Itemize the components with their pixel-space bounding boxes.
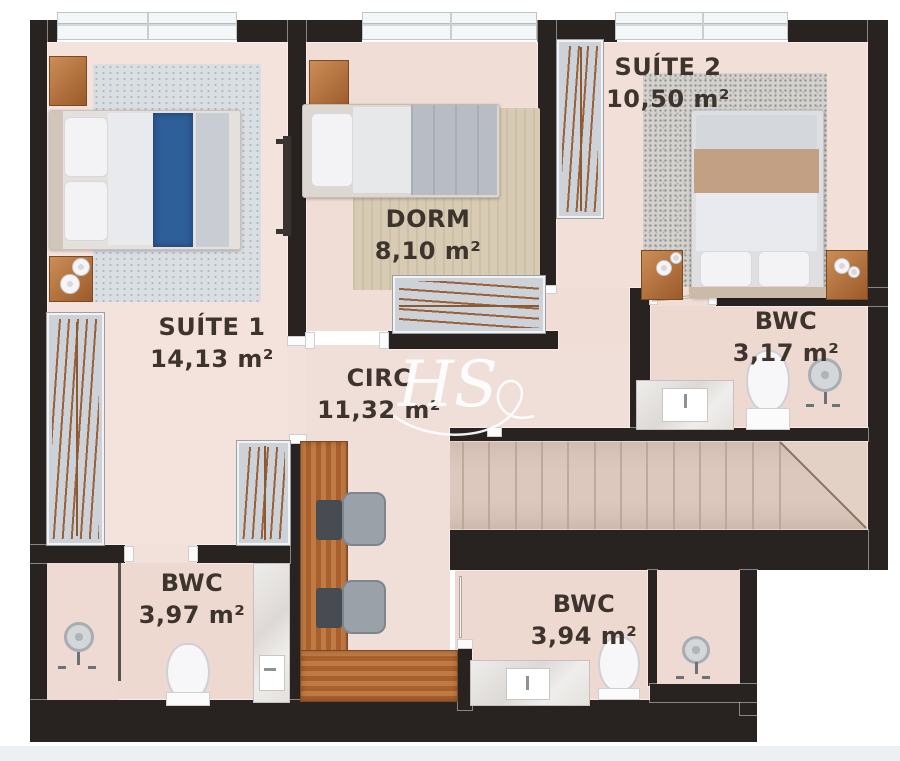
room-label-bwc-suite2: BWC 3,17 m² [733, 306, 840, 369]
window-divider [702, 13, 704, 39]
shower-drain-mark [806, 404, 814, 407]
bed-headboard [689, 287, 826, 298]
suite1-wall-tv [283, 136, 291, 236]
wall-stair-bottom [450, 530, 868, 570]
suite1-wall-tv-arm [276, 139, 285, 144]
window-divider [450, 13, 452, 39]
suite2-nightstand-right [826, 250, 868, 300]
door-jamb [380, 333, 388, 348]
room-name: DORM [375, 204, 482, 236]
suite2-lamp-small [848, 266, 860, 278]
bed-fold-top [696, 115, 817, 149]
bwc394-shower-head [682, 636, 710, 664]
bwc397-shower-glass [118, 563, 121, 681]
room-label-suite1: SUÍTE 1 14,13 m² [150, 312, 274, 375]
dorm-wardrobe-side [557, 40, 603, 218]
bed-pillow [758, 251, 810, 287]
room-area: 3,17 m² [733, 338, 840, 370]
shower-drain-mark [832, 404, 840, 407]
bwc317-toilet-tank [746, 408, 790, 430]
dorm-dresser [309, 60, 349, 110]
room-name: SUÍTE 1 [150, 312, 274, 344]
window-divider [147, 13, 149, 39]
bed-folded-throw [196, 113, 229, 247]
wall-bwc397-top-a [30, 545, 125, 563]
bwc394-shower-floor [657, 570, 740, 684]
window-suite2 [615, 12, 788, 40]
room-area: 3,97 m² [139, 600, 246, 632]
circ-desk-horizontal [300, 650, 458, 702]
bwc394-faucet [526, 676, 529, 690]
door-leaf-bwc394 [459, 576, 462, 638]
room-area: 3,94 m² [531, 621, 638, 653]
bwc397-sink [259, 655, 285, 691]
bed-pillow [311, 113, 353, 187]
room-area: 10,50 m² [606, 84, 730, 116]
suite2-lamp [656, 260, 672, 276]
room-name: BWC [139, 568, 246, 600]
room-name: BWC [531, 589, 638, 621]
bwc397-toilet-tank [166, 692, 210, 706]
suite1-wall-tv-arm [276, 229, 285, 234]
bed-sheet [353, 107, 413, 193]
bed-duvet [108, 113, 154, 245]
shower-drain-mark [676, 676, 684, 679]
suite1-lamp [72, 258, 90, 276]
bed-pillow [64, 117, 108, 177]
bwc397-shower-head [64, 622, 94, 652]
suite2-double-bed [691, 110, 824, 298]
room-label-bwc-social: BWC 3,94 m² [531, 589, 638, 652]
wall-bwc397-top-b [197, 545, 290, 563]
floor-bwc397-door [125, 545, 197, 563]
bwc317-faucet [684, 394, 687, 408]
wall-bottom [30, 700, 757, 742]
desk-chair-seat [342, 580, 386, 634]
suite2-lamp-small [670, 252, 682, 264]
shower-drain-mark [58, 666, 66, 669]
staircase [450, 441, 868, 530]
shower-drain-mark [88, 666, 96, 669]
wall-shower-base [650, 684, 757, 702]
bwc394-toilet-tank [598, 688, 640, 700]
shower-drain-mark [695, 662, 698, 674]
window-suite1 [57, 12, 237, 40]
room-name: SUÍTE 2 [606, 52, 730, 84]
bed-body [696, 193, 817, 251]
bed-runner-blue [153, 113, 193, 247]
shower-drain-mark [77, 652, 80, 665]
wardrobe-rod [580, 47, 582, 211]
window-dorm [362, 12, 537, 40]
suite1-wardrobe-right [237, 441, 290, 545]
bed-pillow [700, 251, 752, 287]
bed-blanket [411, 105, 497, 195]
suite1-wardrobe-left [47, 313, 104, 545]
suite1-lamp-small [60, 274, 80, 294]
door-jamb [189, 547, 197, 561]
desk-chair-back [316, 500, 342, 540]
desk-chair-back [316, 588, 342, 628]
bwc397-faucet [264, 668, 276, 671]
floor-suite1-door [288, 345, 306, 443]
door-jamb [125, 547, 133, 561]
room-label-bwc-suite1: BWC 3,97 m² [139, 568, 246, 631]
wardrobe-rod [76, 322, 78, 536]
wall-left [30, 20, 47, 712]
door-jamb [288, 337, 306, 345]
hs-watermark: HS [388, 336, 538, 448]
room-name: BWC [733, 306, 840, 338]
dorm-single-bed [302, 104, 500, 198]
room-area: 8,10 m² [375, 236, 482, 268]
suite1-nightstand-top [49, 56, 87, 106]
wall-bwc394-partition [648, 570, 657, 686]
page-bottom-strip [0, 746, 900, 761]
room-area: 14,13 m² [150, 344, 274, 376]
room-label-suite2: SUÍTE 2 10,50 m² [606, 52, 730, 115]
bed-headboard [50, 111, 63, 249]
watermark-text: HS [397, 348, 498, 422]
suite1-double-bed [49, 110, 241, 250]
shower-drain-mark [824, 392, 827, 404]
bed-pillow [64, 181, 108, 241]
wall-dorm-suite2 [538, 20, 556, 292]
room-label-dorm: DORM 8,10 m² [375, 204, 482, 267]
floor-plan: SUÍTE 1 14,13 m² DORM 8,10 m² SUÍTE 2 10… [0, 0, 900, 761]
bed-tan-band [694, 149, 819, 193]
shower-drain-mark [702, 676, 710, 679]
wardrobe-rod [264, 446, 266, 540]
door-jamb [458, 640, 472, 648]
dorm-wardrobe-bottom [393, 276, 545, 333]
door-jamb [306, 333, 314, 348]
desk-chair-seat [342, 492, 386, 546]
wardrobe-rod [399, 305, 538, 307]
